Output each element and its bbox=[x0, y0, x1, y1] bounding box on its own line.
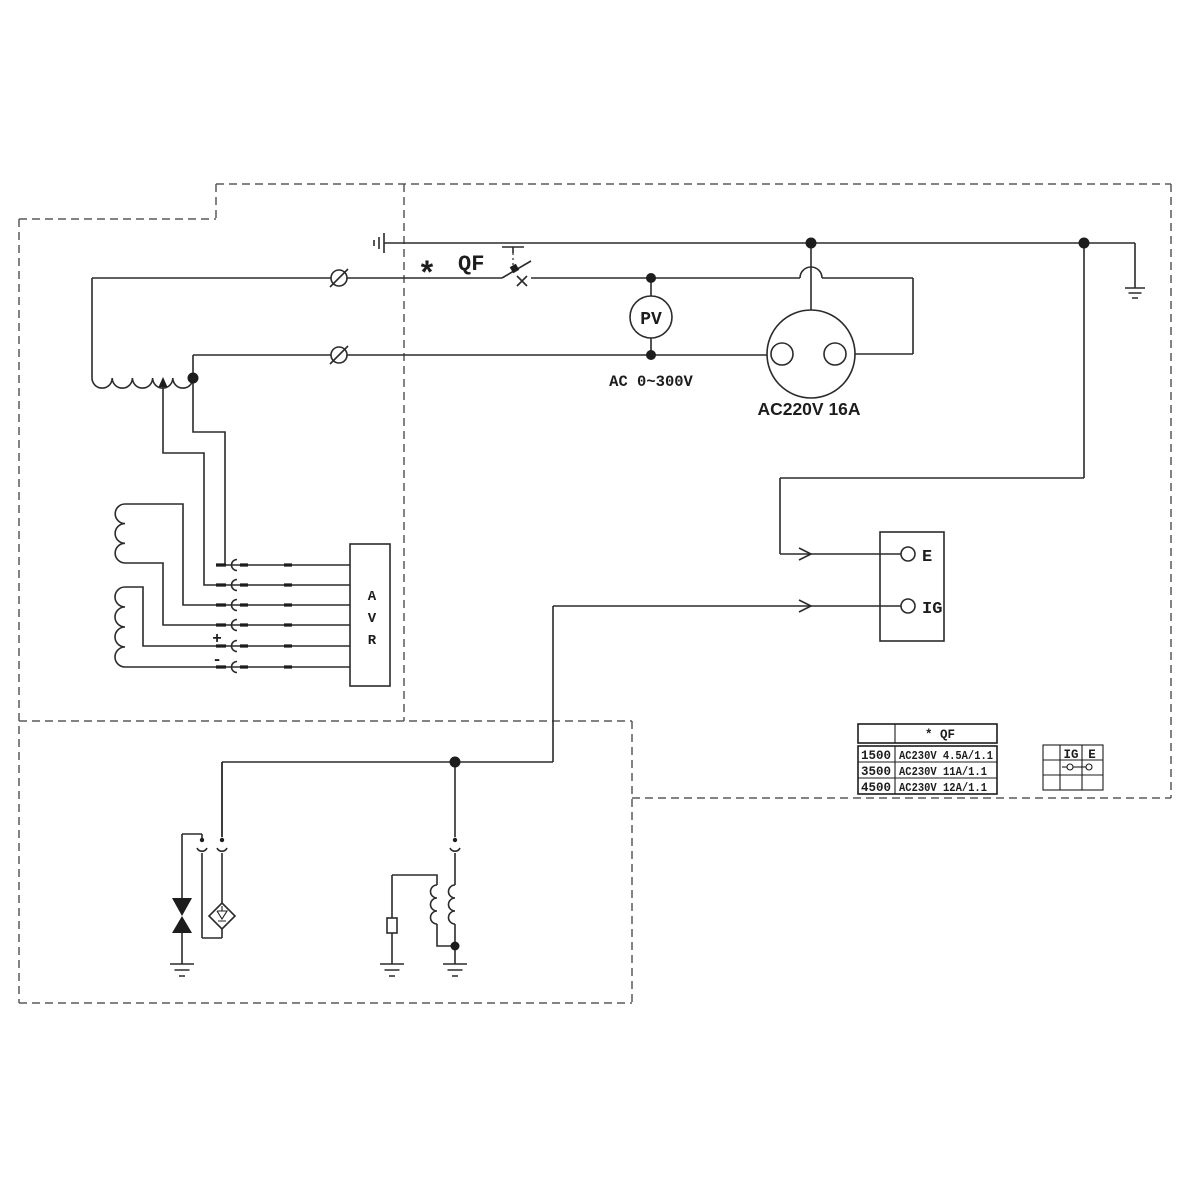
back-to-back-diode-icon bbox=[172, 898, 192, 933]
contact-switch-icon bbox=[1062, 764, 1092, 770]
avr-harness-wires: + - bbox=[125, 378, 350, 673]
terminal-block: E IG bbox=[880, 532, 944, 641]
qf-table-spec-3: AC230V 12A/1.1 bbox=[899, 782, 987, 795]
terminal-e-label: E bbox=[922, 548, 932, 567]
qf-table-spec-2: AC230V 11A/1.1 bbox=[899, 766, 987, 779]
terminal-ig-label: IG bbox=[922, 600, 942, 619]
qf-table-model-3: 4500 bbox=[861, 781, 891, 795]
sub-winding-upper bbox=[115, 504, 125, 563]
qf-table-model-1: 1500 bbox=[861, 749, 891, 763]
ignition-coil-icon bbox=[431, 885, 455, 924]
contact-table-e: E bbox=[1088, 748, 1096, 762]
pv-voltmeter-label: PV bbox=[640, 310, 662, 330]
pv-voltmeter: PV AC 0~300V bbox=[609, 278, 693, 391]
ground-icon-top-right bbox=[1125, 288, 1145, 298]
top-bus-wire bbox=[374, 233, 1145, 298]
qf-rating-table: * QF 1500 AC230V 4.5A/1.1 3500 AC230V 11… bbox=[858, 724, 997, 795]
ac-socket: AC220V 16A bbox=[757, 243, 860, 419]
ground-icon-coil bbox=[443, 964, 467, 976]
junction-dots bbox=[188, 238, 1090, 951]
qf-table-model-2: 3500 bbox=[861, 765, 891, 779]
contact-table-ig: IG bbox=[1063, 748, 1078, 762]
spark-plug-resistor-icon bbox=[387, 918, 397, 933]
dashed-enclosure-border bbox=[19, 184, 1171, 1003]
qf-table-spec-1: AC230V 4.5A/1.1 bbox=[899, 750, 993, 763]
ground-icon-diode bbox=[170, 964, 194, 976]
avr-letter-a: A bbox=[368, 589, 377, 605]
plug-connector-icon-1 bbox=[330, 269, 348, 287]
socket-label: AC220V 16A bbox=[757, 399, 860, 419]
qf-star-label: * bbox=[417, 257, 436, 294]
qf-table-header: * QF bbox=[925, 728, 955, 742]
generator-wiring-diagram: PV AC 0~300V AC220V 16A E IG bbox=[0, 0, 1191, 1191]
sub-winding-lower bbox=[115, 587, 125, 667]
avr-letter-r: R bbox=[368, 633, 377, 649]
avr-letter-v: V bbox=[368, 611, 377, 627]
avr-minus-label: - bbox=[212, 651, 222, 669]
plug-connector-icon-2 bbox=[330, 346, 348, 364]
main-stator-winding bbox=[92, 377, 193, 388]
qf-breaker-label: QF bbox=[458, 252, 484, 277]
qf-breaker-icon bbox=[502, 247, 531, 286]
voltmeter-range-label: AC 0~300V bbox=[609, 373, 693, 391]
ground-icon-plug bbox=[380, 964, 404, 976]
earth-terminal-left-icon bbox=[374, 233, 384, 253]
regulator-diamond-icon bbox=[209, 903, 235, 929]
avr-plus-label: + bbox=[212, 630, 222, 648]
qf-labels: * QF bbox=[417, 252, 484, 294]
ig-e-contact-table: IG E bbox=[1043, 745, 1103, 790]
protection-branch bbox=[170, 762, 235, 976]
avr-unit: A V R bbox=[350, 544, 390, 686]
avr-wire-connectors bbox=[216, 560, 292, 673]
